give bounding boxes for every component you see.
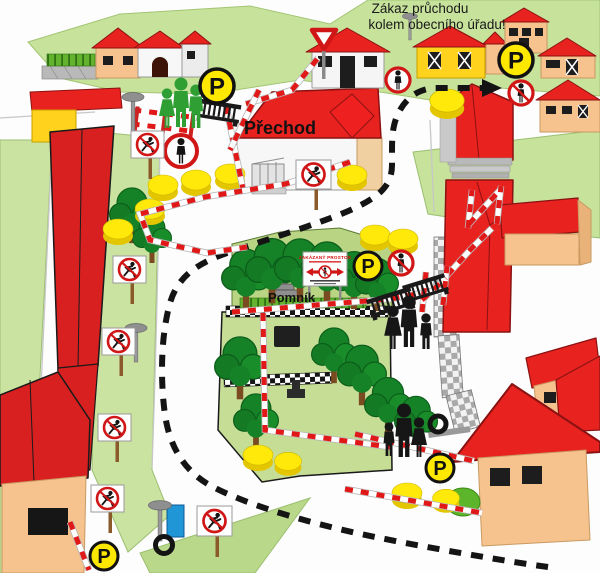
illegible-subtitle-line <box>309 261 341 263</box>
no-pedestrians-slashed-sign <box>509 81 533 105</box>
no-pedestrians-sign <box>165 135 197 167</box>
parking-letter: P <box>361 256 374 278</box>
parking-sign: P <box>499 43 533 77</box>
forbidden-area-title: ZAKÁZANÝ PROSTOR <box>299 254 352 260</box>
arched-door <box>152 57 168 77</box>
illegible-footer-line <box>314 283 336 284</box>
park-pond <box>274 326 300 347</box>
no-pedestrians-slashed-sign <box>389 251 413 275</box>
no-pedestrians-sign <box>386 68 410 92</box>
parking-letter: P <box>97 546 110 568</box>
blue-container <box>167 505 184 537</box>
green-fence <box>47 54 95 66</box>
banner-line-1: Zákaz průchodu <box>372 1 469 16</box>
parking-sign: P <box>90 542 118 570</box>
parking-sign: P <box>354 252 382 280</box>
crossing-label: Přechod <box>244 118 316 138</box>
parking-letter: P <box>209 74 225 101</box>
dark-door <box>340 56 355 88</box>
office-right-wing-wall <box>505 234 579 265</box>
office-right-wing-roof <box>500 198 580 238</box>
parking-letter: P <box>508 48 524 75</box>
village-map-illustration: P P P P P <box>0 0 600 573</box>
banner-line-2: kolem obecního úřadu! <box>368 17 505 32</box>
parking-letter: P <box>433 458 446 480</box>
parking-sign: P <box>426 454 454 482</box>
checkered-wall-mid <box>438 335 463 398</box>
illegible-footer-line <box>310 280 340 282</box>
garage-window <box>28 508 68 535</box>
parking-sign: P <box>200 69 234 103</box>
cobblestone-area <box>42 66 98 79</box>
monument-label: Pomník <box>268 290 316 305</box>
map-canvas: P P P P P <box>0 0 600 573</box>
